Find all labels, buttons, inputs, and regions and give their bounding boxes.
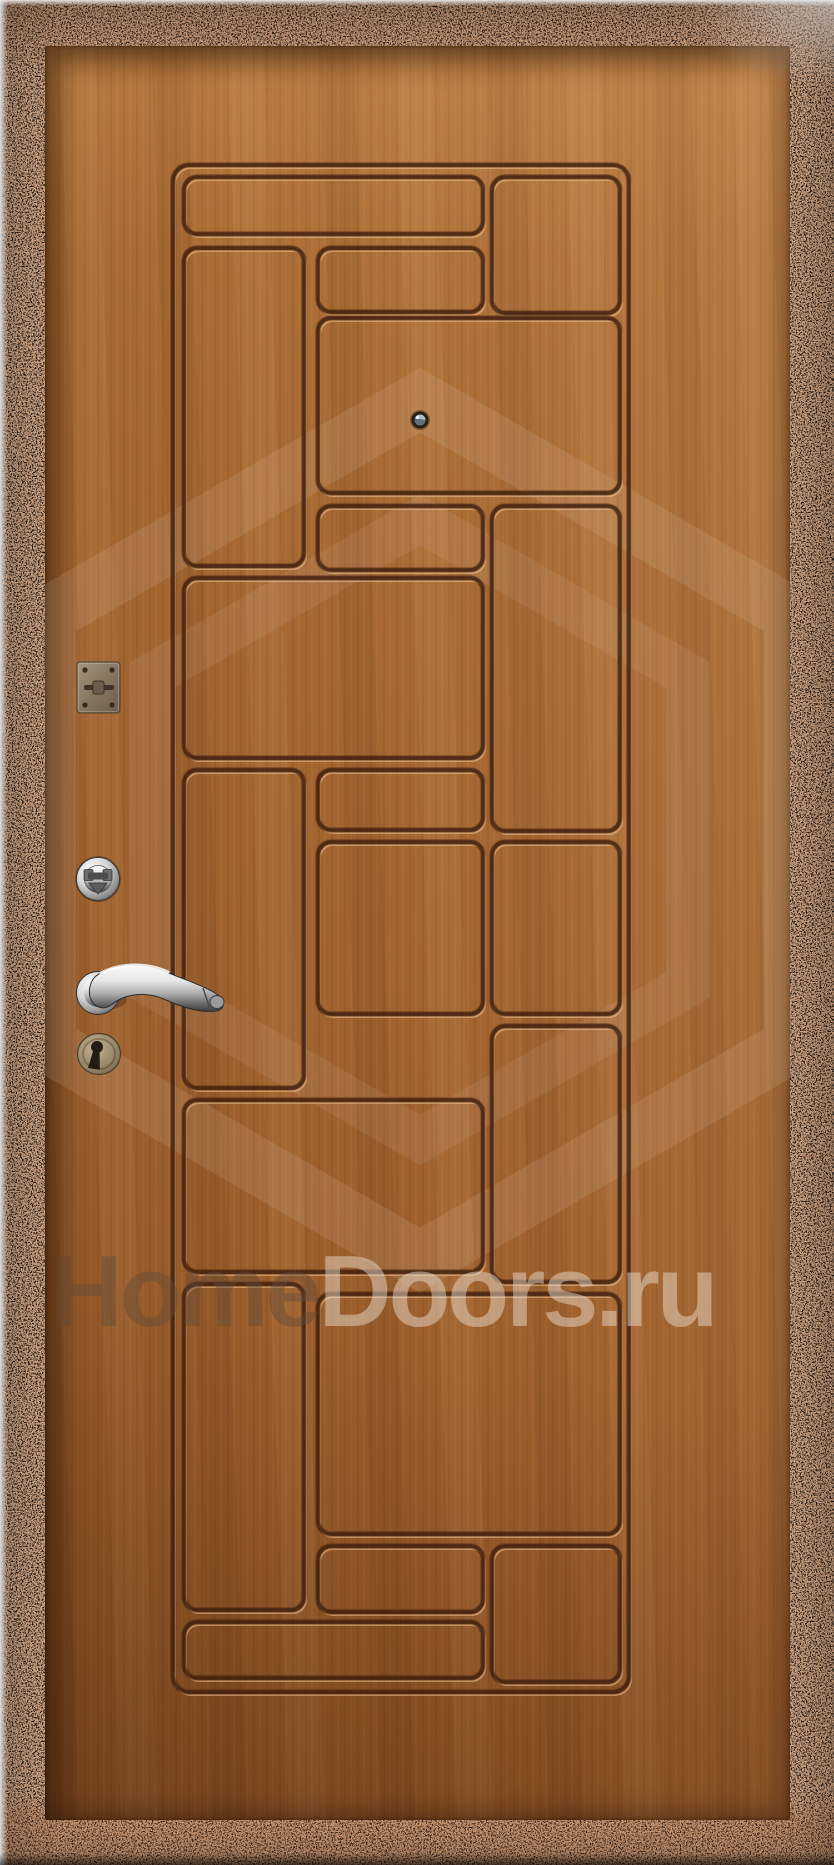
photo-corner-glare: [684, 0, 834, 90]
photo-edge-top: [0, 0, 834, 6]
door-product-photo: HomeDoors.ru: [0, 0, 834, 1865]
photo-edge-left: [0, 0, 8, 1865]
door-panel: [45, 46, 790, 1820]
bottom-shadow: [0, 1853, 834, 1865]
